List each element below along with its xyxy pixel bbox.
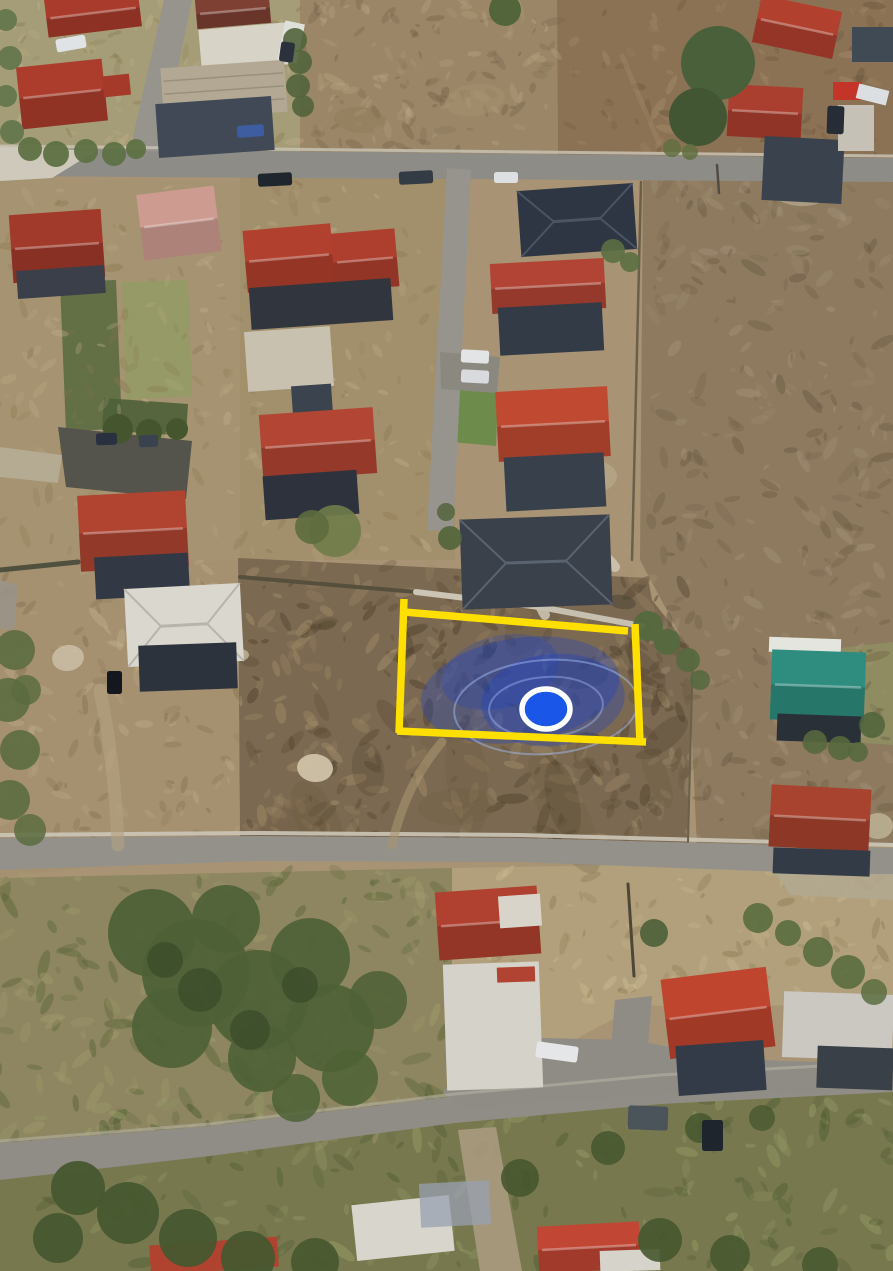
annex-street-dark1-roof	[498, 302, 604, 355]
speckle	[325, 666, 332, 680]
bldg-ne-dark	[761, 136, 844, 204]
tree	[676, 648, 700, 672]
shadow-pavilion	[138, 642, 238, 691]
tree	[591, 1131, 625, 1165]
debris-b-roof	[419, 1180, 491, 1228]
tree	[11, 675, 41, 705]
annex-street-dark1	[498, 302, 604, 355]
car	[139, 435, 158, 448]
slab-concrete-roof	[244, 326, 334, 392]
tree	[690, 670, 710, 690]
house-tl-red	[16, 59, 108, 130]
tree	[861, 979, 887, 1005]
tree	[230, 1010, 270, 1050]
tree	[18, 137, 42, 161]
car	[494, 172, 518, 183]
car	[461, 369, 490, 383]
tree	[803, 937, 833, 967]
tree	[0, 730, 40, 770]
tree	[282, 967, 318, 1003]
tree	[43, 141, 69, 167]
annex-street-dark2	[504, 452, 607, 511]
tree	[178, 968, 222, 1012]
speckle	[762, 491, 778, 498]
car	[279, 41, 296, 63]
car	[96, 433, 117, 446]
walls-right-dark	[773, 847, 871, 876]
shed-ne-dark-roof	[852, 27, 893, 62]
car	[628, 1105, 669, 1130]
tree	[51, 1161, 105, 1215]
annex-tl-red	[102, 74, 131, 98]
tree	[33, 1213, 83, 1263]
house-central-red	[259, 407, 377, 481]
tree	[743, 903, 773, 933]
strip-br-red	[497, 966, 536, 982]
walls-br-dark	[675, 1040, 766, 1096]
tree	[147, 942, 183, 978]
location-marker-icon	[522, 689, 570, 729]
car	[237, 124, 265, 138]
bldg-br-gray-dark-roof	[816, 1046, 893, 1091]
tree	[126, 139, 146, 159]
annex-br-white	[498, 894, 542, 929]
tree	[828, 736, 852, 760]
tree	[14, 814, 46, 846]
house-right-red	[768, 784, 871, 851]
speckle	[104, 1019, 133, 1029]
car	[258, 172, 293, 187]
tree	[620, 252, 640, 272]
speckle	[682, 513, 697, 518]
tree	[74, 139, 98, 163]
annex-br-white-roof	[498, 894, 542, 929]
walls-br-dark-roof	[675, 1040, 766, 1096]
car	[827, 106, 845, 135]
car	[107, 671, 122, 694]
tree	[0, 120, 24, 144]
tree	[438, 526, 462, 550]
house-street-red2	[495, 386, 611, 462]
tree	[848, 742, 868, 762]
tree	[437, 503, 455, 521]
tree	[349, 971, 407, 1029]
car	[399, 170, 434, 185]
slab-concrete	[244, 326, 334, 392]
strip-br-red-roof	[497, 966, 536, 982]
tree	[831, 955, 865, 989]
tree	[295, 510, 329, 544]
tree	[682, 144, 698, 160]
tree	[663, 139, 681, 157]
speckle	[330, 1169, 340, 1173]
house-center-red-a	[242, 223, 335, 292]
tree	[286, 74, 310, 98]
tree	[292, 95, 314, 117]
car	[702, 1120, 723, 1151]
driveway-spur	[611, 996, 652, 1048]
hip-ridge	[506, 561, 566, 563]
plot-edge-left	[399, 599, 404, 733]
house-gray-hip	[459, 514, 612, 609]
annex-tl-red-roof	[102, 74, 131, 98]
walls-right-dark-roof	[773, 847, 871, 876]
car	[461, 349, 490, 363]
tree	[97, 1182, 159, 1244]
tree	[102, 142, 126, 166]
speckle	[261, 876, 283, 886]
house-teal	[770, 649, 866, 722]
tree	[775, 920, 801, 946]
satellite-view	[0, 0, 893, 1271]
tree	[803, 730, 827, 754]
shadow-pavilion-roof	[138, 642, 238, 691]
speckle	[821, 1111, 827, 1130]
tree	[272, 1074, 320, 1122]
tree	[859, 712, 885, 738]
satellite-image	[0, 0, 893, 1271]
bldg-ne-dark-roof	[761, 136, 844, 204]
tree	[640, 919, 668, 947]
tree	[654, 629, 680, 655]
tree	[192, 885, 260, 953]
plot-edge-right	[635, 624, 640, 742]
speckle	[106, 244, 119, 251]
tree	[322, 1050, 378, 1106]
debris-b	[419, 1180, 491, 1228]
bldg-br-gray-dark	[816, 1046, 893, 1091]
tree	[749, 1105, 775, 1131]
speckle	[311, 130, 326, 138]
speckle	[330, 82, 349, 90]
tree	[638, 1218, 682, 1262]
tree	[669, 88, 727, 146]
garden-row-2	[122, 280, 192, 400]
tree	[501, 1159, 539, 1197]
tree	[159, 1209, 217, 1267]
tree	[166, 418, 188, 440]
house-pink	[136, 185, 221, 260]
shed-ne-dark	[852, 27, 893, 62]
annex-street-dark2-roof	[504, 452, 607, 511]
